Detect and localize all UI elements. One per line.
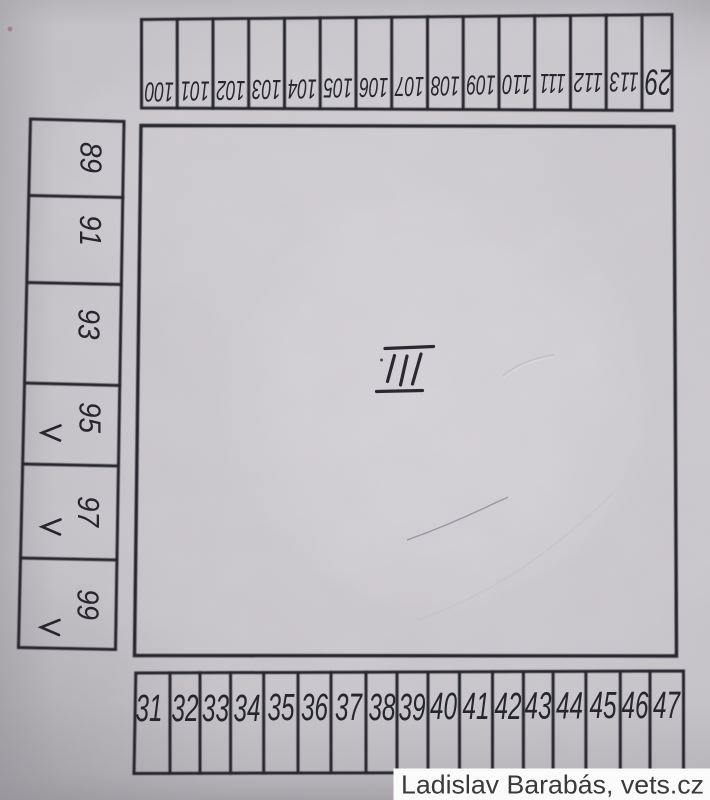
svg-text:100: 100 xyxy=(145,77,174,108)
svg-text:38: 38 xyxy=(369,687,396,729)
svg-text:93: 93 xyxy=(72,309,107,340)
svg-text:102: 102 xyxy=(216,75,245,106)
svg-text:45: 45 xyxy=(590,685,618,727)
svg-text:35: 35 xyxy=(268,687,296,729)
svg-text:110: 110 xyxy=(502,69,531,100)
svg-text:95: 95 xyxy=(73,402,108,434)
svg-text:112: 112 xyxy=(574,67,603,98)
svg-text:42: 42 xyxy=(495,686,522,728)
svg-text:101: 101 xyxy=(181,76,210,107)
svg-text:Ladislav Barabás, vets.cz: Ladislav Barabás, vets.cz xyxy=(401,770,704,800)
svg-text:32: 32 xyxy=(172,688,199,730)
svg-text:34: 34 xyxy=(234,688,261,730)
svg-text:103: 103 xyxy=(252,74,281,105)
svg-text:31: 31 xyxy=(136,688,163,730)
svg-text:44: 44 xyxy=(556,686,583,728)
svg-text:99: 99 xyxy=(71,589,106,620)
svg-text:89: 89 xyxy=(74,142,109,173)
svg-text:106: 106 xyxy=(359,72,388,103)
svg-text:43: 43 xyxy=(525,686,552,728)
svg-text:109: 109 xyxy=(467,70,496,101)
svg-text:40: 40 xyxy=(430,686,457,728)
svg-text:105: 105 xyxy=(323,73,352,104)
svg-text:113: 113 xyxy=(609,67,638,98)
svg-text:46: 46 xyxy=(622,685,650,727)
svg-text:33: 33 xyxy=(202,688,229,730)
svg-text:41: 41 xyxy=(463,686,490,728)
svg-text:37: 37 xyxy=(335,687,363,729)
svg-text:97: 97 xyxy=(71,496,106,529)
svg-text:108: 108 xyxy=(431,70,460,101)
svg-text:104: 104 xyxy=(288,73,317,104)
svg-text:107: 107 xyxy=(394,71,424,102)
svg-text:111: 111 xyxy=(540,68,566,99)
svg-text:36: 36 xyxy=(301,687,329,729)
svg-text:29: 29 xyxy=(645,62,673,103)
svg-text:47: 47 xyxy=(653,685,681,727)
svg-text:39: 39 xyxy=(399,687,426,729)
svg-text:91: 91 xyxy=(73,215,108,246)
